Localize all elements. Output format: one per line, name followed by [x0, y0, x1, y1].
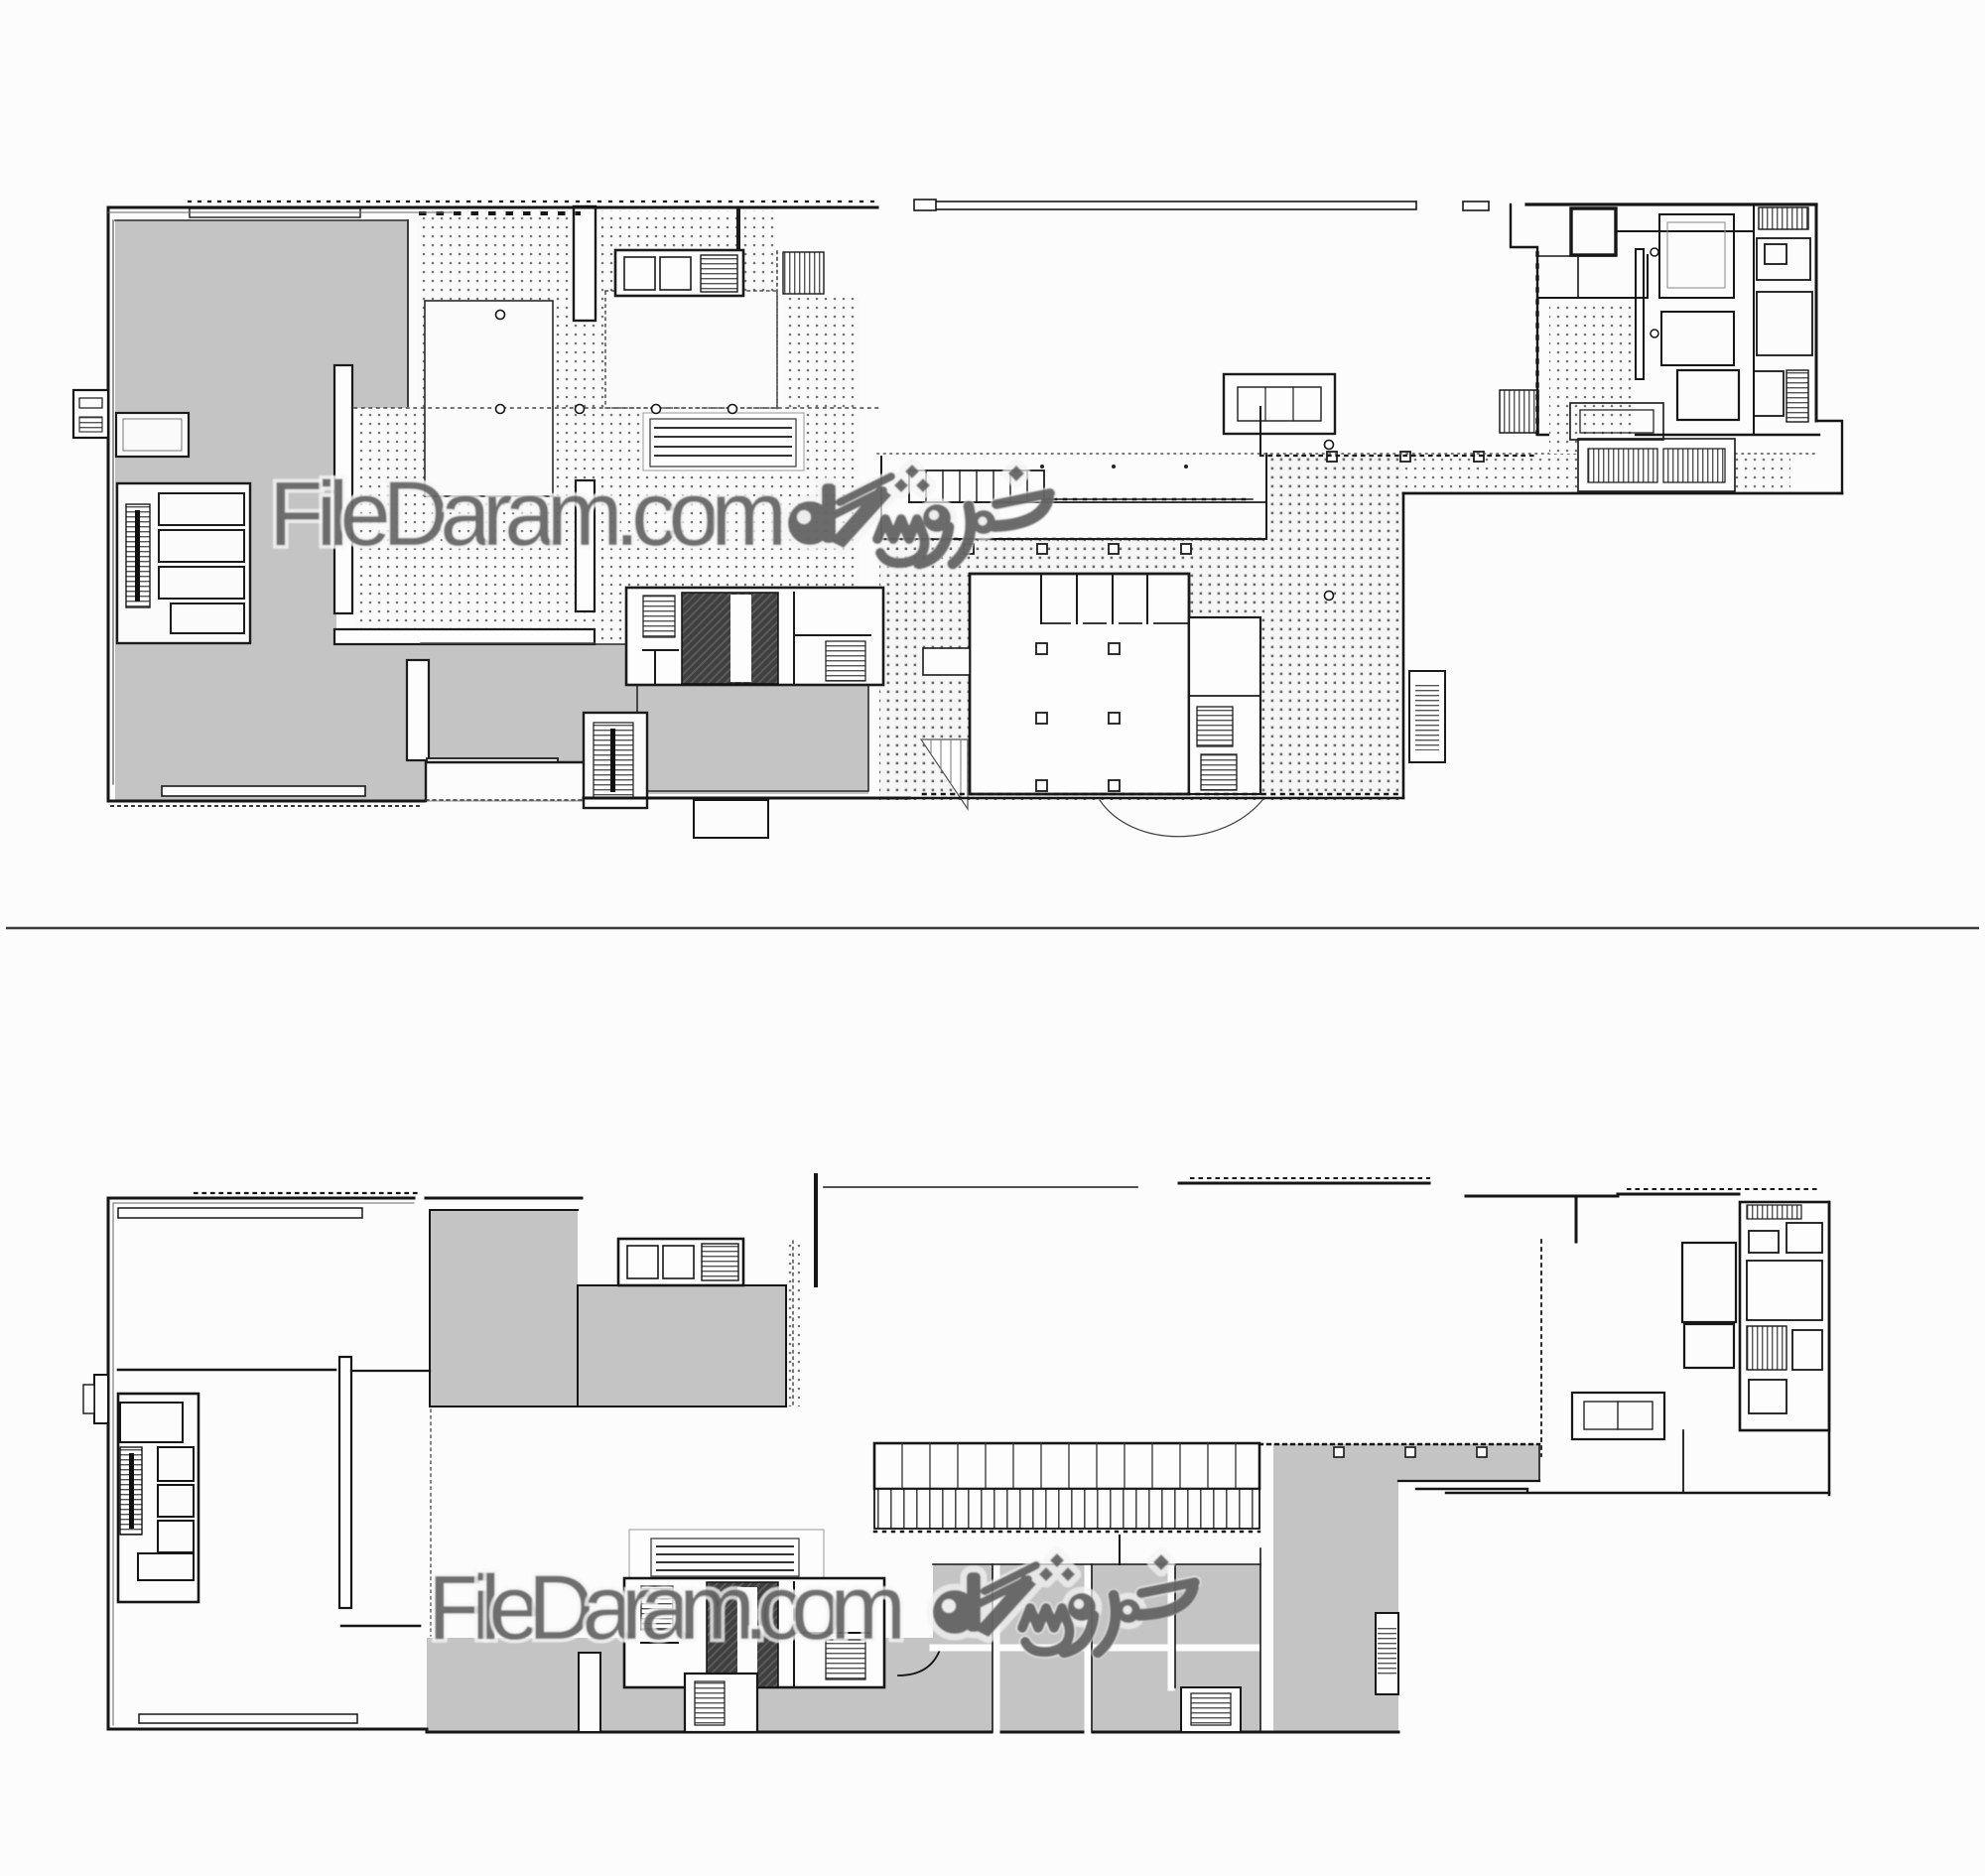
- svg-text:FileDaram.com: FileDaram.com: [428, 1557, 906, 1659]
- svg-text:FileDaram.com: FileDaram.com: [269, 464, 787, 565]
